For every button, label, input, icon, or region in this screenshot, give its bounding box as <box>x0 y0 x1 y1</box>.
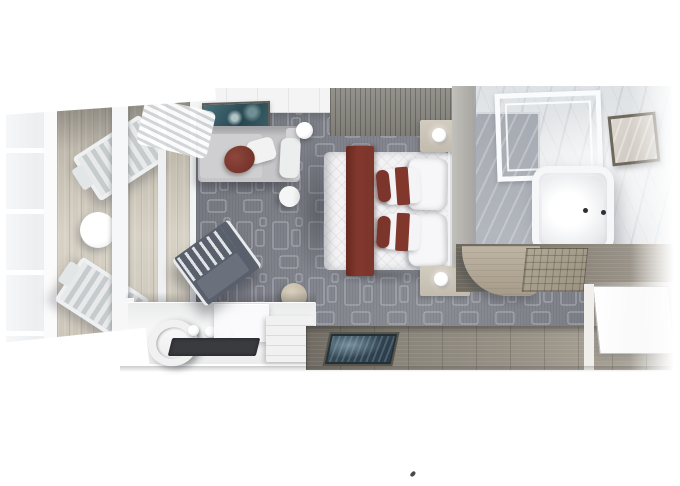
divider-wall <box>452 86 474 268</box>
desk-knob <box>188 325 199 336</box>
tub-faucet-dot <box>583 208 588 213</box>
stray-mark <box>410 470 417 477</box>
teak-bath-mat <box>522 248 589 292</box>
bedside-lamp-upper <box>432 128 446 142</box>
tub-faucet-dot <box>601 210 606 215</box>
right-fade <box>630 78 680 380</box>
burgundy-bolster-lower <box>376 216 391 249</box>
door-threshold <box>584 284 594 370</box>
frosted-cabinet <box>214 304 269 342</box>
dark-desk-mat <box>168 338 260 356</box>
entry-rug <box>325 334 397 364</box>
floor-lamp <box>296 122 313 139</box>
bedside-lamp-lower <box>434 272 448 286</box>
balcony-round-table <box>80 212 116 248</box>
balcony-railing-cap <box>44 90 57 352</box>
burgundy-bed-runner <box>346 146 374 276</box>
suite-floorplan-render <box>0 0 680 486</box>
room-bottom-edge <box>120 366 680 372</box>
